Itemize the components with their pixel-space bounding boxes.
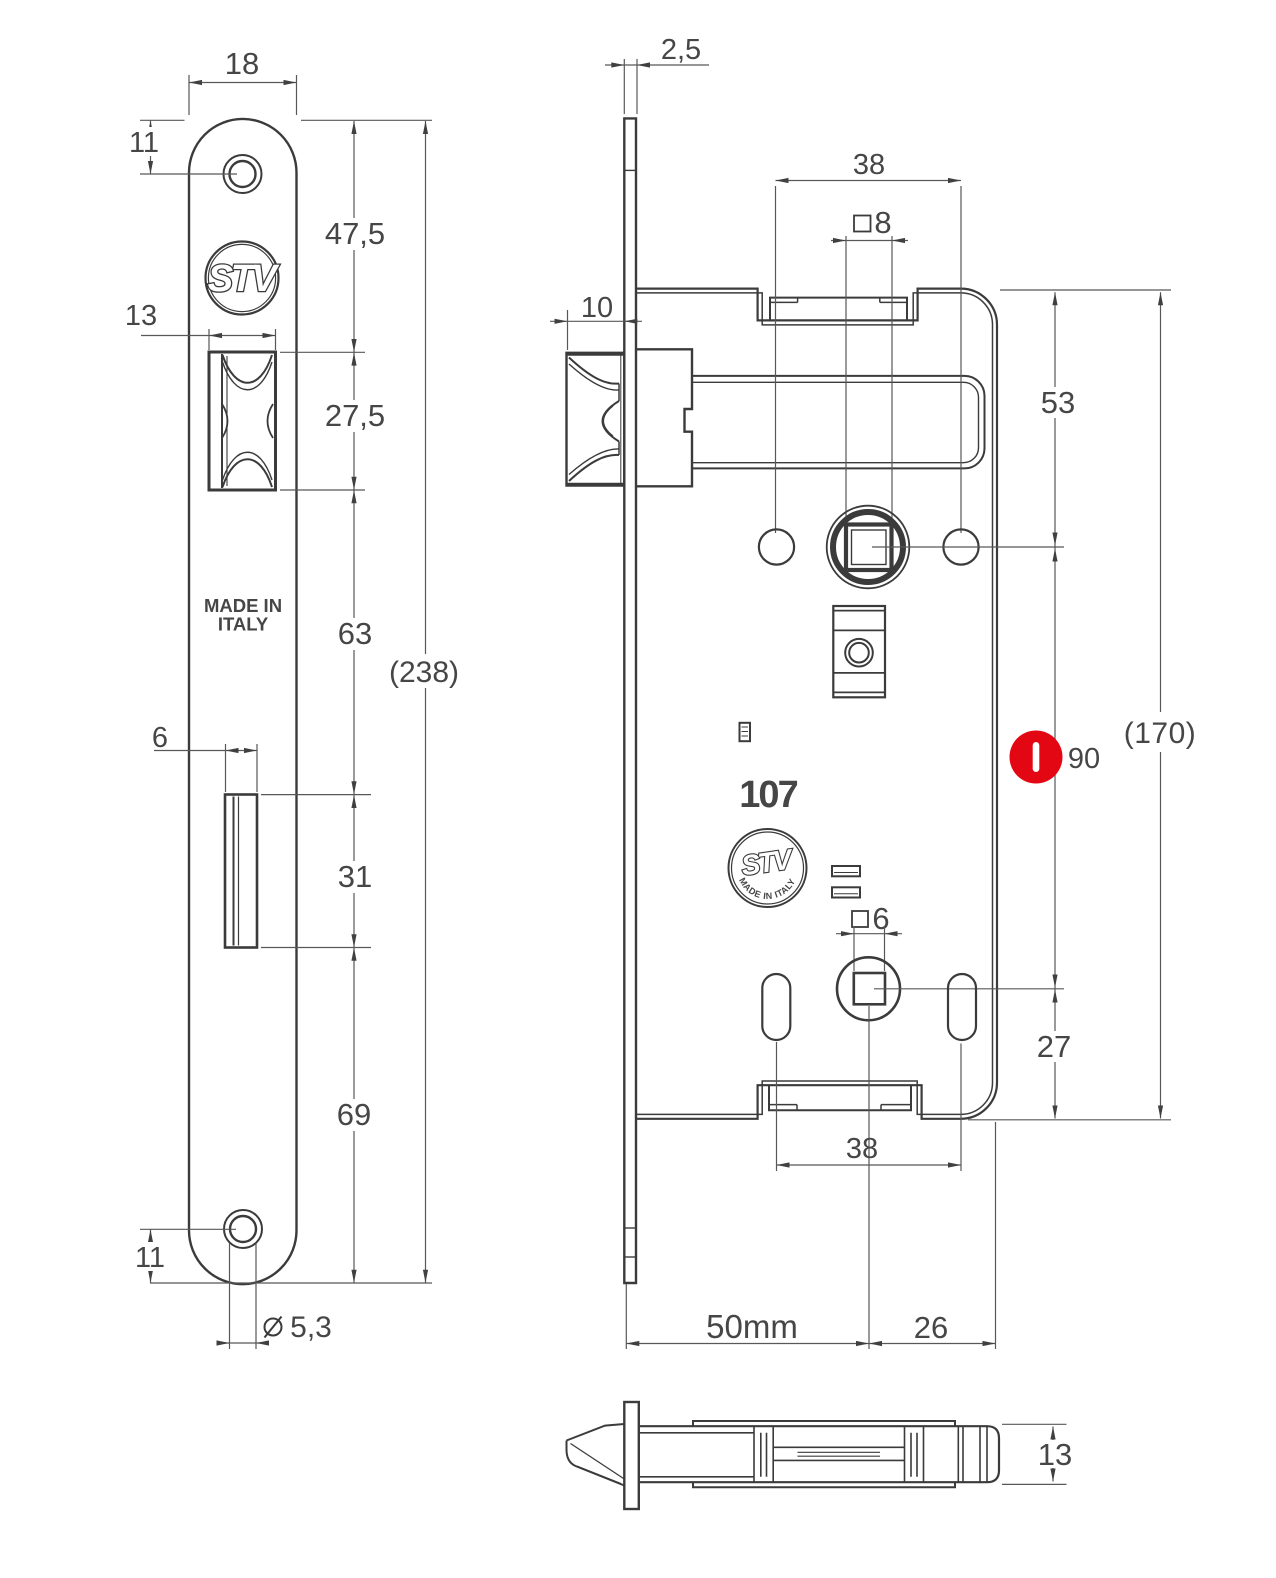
svg-text:11: 11	[135, 1242, 165, 1274]
svg-text:26: 26	[914, 1310, 948, 1345]
svg-text:STV: STV	[739, 843, 796, 881]
svg-text:27: 27	[1037, 1029, 1071, 1064]
svg-text:13: 13	[125, 300, 157, 332]
svg-text:2,5: 2,5	[661, 34, 701, 66]
svg-text:38: 38	[846, 1133, 878, 1165]
svg-text:6: 6	[152, 722, 168, 754]
svg-text:6: 6	[872, 901, 889, 936]
svg-text:5,3: 5,3	[290, 1311, 332, 1344]
svg-text:107: 107	[739, 774, 797, 816]
svg-text:10: 10	[581, 292, 613, 324]
svg-text:27,5: 27,5	[325, 398, 385, 433]
svg-text:31: 31	[338, 859, 372, 894]
svg-text:47,5: 47,5	[325, 216, 385, 251]
svg-text:8: 8	[874, 205, 891, 240]
svg-text:STV: STV	[208, 258, 280, 300]
svg-text:38: 38	[853, 149, 885, 181]
svg-text:ITALY: ITALY	[218, 614, 269, 635]
svg-text:63: 63	[338, 616, 372, 651]
svg-text:(170): (170)	[1124, 717, 1197, 750]
svg-text:69: 69	[337, 1097, 371, 1132]
svg-text:50mm: 50mm	[706, 1308, 798, 1345]
svg-text:13: 13	[1038, 1437, 1072, 1472]
svg-text:18: 18	[225, 46, 259, 81]
svg-text:(238): (238)	[389, 656, 459, 689]
svg-text:90: 90	[1068, 743, 1100, 775]
svg-text:53: 53	[1041, 385, 1075, 420]
svg-text:11: 11	[129, 127, 159, 159]
